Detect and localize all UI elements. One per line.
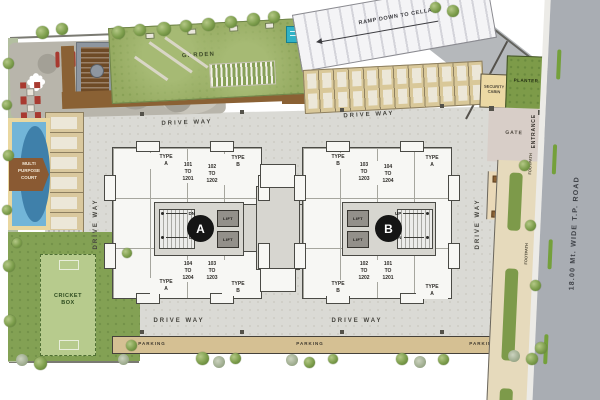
column-icon (440, 104, 444, 108)
balcony (136, 293, 160, 304)
stair-dot-icon (426, 212, 429, 215)
balcony (210, 141, 234, 152)
tree-icon (304, 357, 315, 368)
tree-icon (196, 352, 209, 365)
tree-icon (438, 354, 449, 365)
parked-cars-col (51, 113, 77, 229)
balcony (294, 243, 306, 269)
flower-seat-icon (32, 78, 40, 86)
balcony (448, 175, 460, 201)
tree-icon (134, 24, 146, 36)
lift: LIFT (347, 210, 369, 227)
unit-label: 104 TO 1204 (374, 163, 402, 185)
cricket-box-label: CRICKET BOX (48, 293, 88, 307)
building-a-core: DN UP LIFT LIFT A (154, 202, 244, 256)
column-icon (340, 330, 344, 334)
garden-pergola-slats (209, 60, 276, 87)
unit-label: TYPE B (322, 280, 354, 296)
balcony (326, 141, 350, 152)
site-plan: GARDEN RAMP DOWN TO CELLAR MULTI PURPOSE… (0, 0, 600, 400)
tree-icon (112, 26, 125, 39)
balcony (258, 243, 270, 269)
stair-label: UP (395, 211, 401, 216)
unit-label: TYPE A (416, 154, 448, 170)
tree-icon (56, 23, 68, 35)
balcony (448, 243, 460, 269)
road-label: 18.00 Mt. WIDE T.P. ROAD (568, 115, 585, 290)
tree-icon (3, 150, 14, 161)
tree-icon (247, 13, 260, 26)
lane-dash-icon (556, 49, 561, 79)
bush-icon (118, 354, 129, 365)
stair-arrow (166, 237, 187, 238)
tree-icon (202, 18, 215, 31)
tree-icon (3, 260, 15, 272)
building-b-badge: B (375, 215, 402, 242)
garden-path (134, 56, 168, 81)
tree-icon (180, 20, 192, 32)
picnic-table-icon (26, 88, 34, 96)
driveway-label: DRIVE WAY (142, 318, 216, 326)
tree-icon (225, 16, 237, 28)
tree-icon (268, 11, 280, 23)
lane-dash-icon (547, 239, 552, 269)
tree-icon (525, 220, 536, 231)
column-icon (440, 330, 444, 334)
crease-mark (59, 260, 79, 270)
hedge (507, 172, 523, 231)
connector-room (260, 164, 296, 188)
tree-icon (535, 342, 547, 354)
tree-icon (4, 315, 16, 327)
balcony (104, 175, 116, 201)
lift: LIFT (217, 231, 239, 248)
tree-icon (12, 238, 22, 248)
tree-icon (3, 58, 14, 69)
tree-icon (430, 2, 441, 13)
column-icon (140, 112, 144, 116)
tree-icon (230, 353, 241, 364)
tree-icon (157, 22, 171, 36)
tree-icon (328, 354, 338, 364)
column-icon (340, 108, 344, 112)
tree-icon (396, 353, 408, 365)
picnic-table-icon (27, 104, 35, 112)
gate-post-icon (489, 106, 494, 111)
tree-icon (530, 280, 541, 291)
bush-icon (213, 356, 225, 368)
connector-room (260, 268, 296, 292)
balcony (104, 243, 116, 269)
garden-bench (265, 22, 274, 28)
footpath-label: FOOTPATH (523, 234, 530, 274)
building-b-core: LIFT LIFT UP DN B (342, 202, 436, 256)
garden-bench (145, 33, 154, 39)
bottom-parking: PARKING PARKING PARKING (112, 336, 529, 354)
parking-label: PARKING (285, 341, 335, 347)
unit-label: 103 TO 1203 (198, 260, 226, 282)
tree-icon (2, 205, 12, 215)
bush-icon (508, 350, 520, 362)
bush-icon (414, 356, 426, 368)
unit-label: TYPE B (222, 280, 254, 296)
column-icon (240, 330, 244, 334)
multipurpose-court-label: MULTI PURPOSE COURT (9, 158, 49, 191)
cricket-pitch: CRICKET BOX (40, 254, 96, 356)
hedge (497, 388, 513, 400)
tree-icon (34, 357, 47, 370)
building-a-badge: A (187, 215, 214, 242)
tree-icon (36, 26, 49, 39)
building-b: TYPE B 103 TO 1203 104 TO 1204 TYPE A 10… (302, 142, 460, 304)
multipurpose-court: MULTI PURPOSE COURT (8, 118, 50, 230)
tree-icon (526, 353, 538, 365)
unit-label: TYPE A (416, 283, 448, 299)
stair-arrow (166, 213, 187, 214)
driveway-label: DRIVE WAY (93, 187, 101, 261)
lift: LIFT (217, 210, 239, 227)
balcony (294, 175, 306, 201)
pergola-center (90, 64, 104, 78)
tree-icon (519, 160, 530, 171)
stair-arrow (403, 213, 424, 214)
driveway-label: DRIVE WAY (320, 318, 394, 326)
stair-arrow (404, 237, 425, 238)
column-icon (140, 330, 144, 334)
road-wrap: FOOTPATH FOOTPATH FOOTPATH 18.00 Mt. WID… (485, 0, 600, 400)
bush-icon (286, 354, 298, 366)
balcony (400, 141, 424, 152)
balcony (136, 141, 160, 152)
unit-label: 101 TO 1201 (374, 260, 402, 282)
stair-dot-icon (161, 236, 164, 239)
stair-dot-icon (161, 212, 164, 215)
hedge (501, 268, 518, 360)
crease-mark (59, 340, 79, 350)
driveway-label: DRIVE WAY (475, 187, 483, 261)
tree-icon (126, 340, 137, 351)
tree-icon (122, 248, 132, 258)
column-icon (240, 110, 244, 114)
top-parking (303, 61, 485, 114)
tree-icon (2, 100, 12, 110)
lift: LIFT (347, 231, 369, 248)
parked-cars-row (305, 85, 484, 109)
tree-icon (447, 5, 459, 17)
bush-icon (16, 354, 28, 366)
ramp-arrowhead-icon (316, 38, 323, 45)
unit-label: TYPE A (150, 278, 182, 294)
lane-dash-icon (552, 144, 557, 174)
stair-dot-icon (426, 236, 429, 239)
unit-label: TYPE B (222, 154, 254, 170)
